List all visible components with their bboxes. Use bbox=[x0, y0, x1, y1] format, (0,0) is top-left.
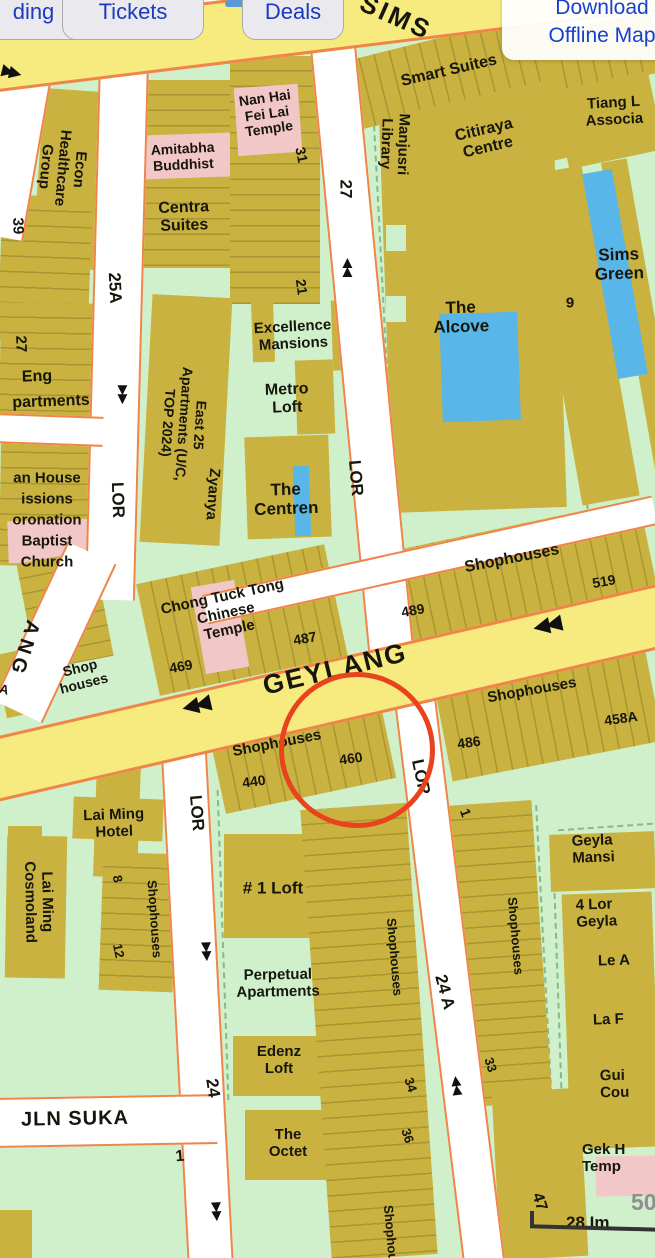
label-9: 9 bbox=[566, 296, 574, 313]
alcove-notch bbox=[386, 296, 406, 322]
label-manjusri-library: Manjusri Library bbox=[376, 113, 412, 176]
label-27-left: 27 bbox=[11, 335, 28, 352]
label-zyanya: Zyanya bbox=[202, 468, 222, 521]
download-offline-map-button[interactable]: Download Offline Map bbox=[502, 0, 655, 60]
label-31: 31 bbox=[292, 146, 311, 164]
one-way-arrow-icon: ▼ ▼ bbox=[198, 942, 216, 962]
label-econ: Econ Healthcare Group bbox=[34, 128, 91, 209]
building-cosmoland-b bbox=[8, 826, 42, 842]
label-centren: The Centren bbox=[253, 479, 319, 519]
label-la-f: La F bbox=[593, 1011, 624, 1029]
map-canvas[interactable]: SIMS GEYLANG JLN SUKA ANG 25A LOR 27 LOR… bbox=[0, 0, 655, 1258]
label-laiming-cosmoland: Lai Ming Cosmoland bbox=[20, 861, 55, 943]
one-way-arrow-icon: ▲ ▲ bbox=[447, 1075, 466, 1096]
label-amitabha: Amitabha Buddhist bbox=[150, 140, 215, 175]
label-21: 21 bbox=[292, 278, 310, 296]
alcove-notch bbox=[386, 225, 406, 251]
label-apartments: partments bbox=[12, 392, 90, 413]
label-jln-suka-1: 1 bbox=[175, 1148, 185, 1167]
label-metro-loft: Metro Loft bbox=[265, 380, 310, 417]
label-sims-green: Sims Green bbox=[594, 244, 644, 284]
tickets-button-label: Tickets bbox=[99, 0, 168, 25]
road-label-27: 27 bbox=[336, 180, 355, 199]
label-excellence-mansions: Excellence Mansions bbox=[253, 317, 332, 355]
label-tiang-association: Tiang L Associa bbox=[584, 94, 643, 131]
deals-button[interactable]: Deals bbox=[242, 0, 344, 40]
label-perpetual: Perpetual Apartments bbox=[236, 966, 320, 1001]
building-corner bbox=[0, 1210, 32, 1258]
tickets-button[interactable]: Tickets bbox=[62, 0, 204, 40]
one-way-arrow-icon: ◀◀ bbox=[533, 618, 560, 634]
road-label-lor-25a: LOR bbox=[108, 482, 128, 519]
label-50: 50 bbox=[631, 1190, 655, 1216]
label-centra-suites: Centra Suites bbox=[158, 198, 210, 236]
label-edenz: Edenz Loft bbox=[257, 1044, 301, 1078]
label-alcove: The Alcove bbox=[432, 297, 489, 337]
deals-button-label: Deals bbox=[265, 0, 321, 25]
road-label-24: 24 bbox=[202, 1077, 223, 1098]
download-offline-map-label: Download Offline Map bbox=[549, 0, 655, 50]
one-way-arrow-icon: ▼ ▼ bbox=[114, 385, 131, 404]
label-octet: The Octet bbox=[269, 1127, 307, 1161]
lot-line bbox=[558, 823, 653, 832]
one-way-arrow-icon: ▼ ▼ bbox=[208, 1202, 226, 1222]
building-shophouses-8-12 bbox=[99, 852, 178, 992]
road-label-lor-24: LOR bbox=[186, 794, 208, 831]
road-side-lane bbox=[0, 413, 103, 447]
label-baptist-church: an House issions oronation Baptist Churc… bbox=[12, 468, 81, 573]
label-one-loft: # 1 Loft bbox=[243, 878, 303, 897]
label-12: 12 bbox=[109, 942, 126, 959]
one-way-arrow-icon: ▲ ▲ bbox=[339, 258, 356, 277]
label-4-lor-geylang: 4 Lor Geyla bbox=[575, 896, 617, 931]
label-39: 39 bbox=[8, 217, 25, 234]
label-486: 486 bbox=[456, 734, 481, 753]
one-way-arrow-icon: ▶▶ bbox=[1, 66, 18, 78]
highlight-circle bbox=[279, 672, 435, 828]
lodging-button-label: ding bbox=[13, 0, 55, 25]
label-geylang-mansions: Geyla Mansi bbox=[571, 832, 615, 867]
label-le-a: Le A bbox=[598, 952, 631, 970]
road-label-lor-27: LOR bbox=[345, 459, 367, 496]
label-gek-temple: Gek H Temp bbox=[582, 1142, 625, 1176]
road-label-25a: 25A bbox=[105, 272, 126, 304]
label-eng: Eng bbox=[22, 368, 53, 387]
road-label-jln-suka: JLN SUKA bbox=[21, 1107, 129, 1131]
one-way-arrow-icon: ◀◀ bbox=[182, 697, 209, 713]
label-gui-court: Gui Cou bbox=[600, 1068, 630, 1102]
label-nanhai-temple: Nan Hai Fei Lai Temple bbox=[238, 87, 296, 141]
label-laiming-hotel: Lai Ming Hotel bbox=[83, 806, 145, 842]
label-440: 440 bbox=[241, 773, 266, 792]
label-east25: East 25 Apartments (U/C, TOP 2024) bbox=[156, 365, 212, 482]
